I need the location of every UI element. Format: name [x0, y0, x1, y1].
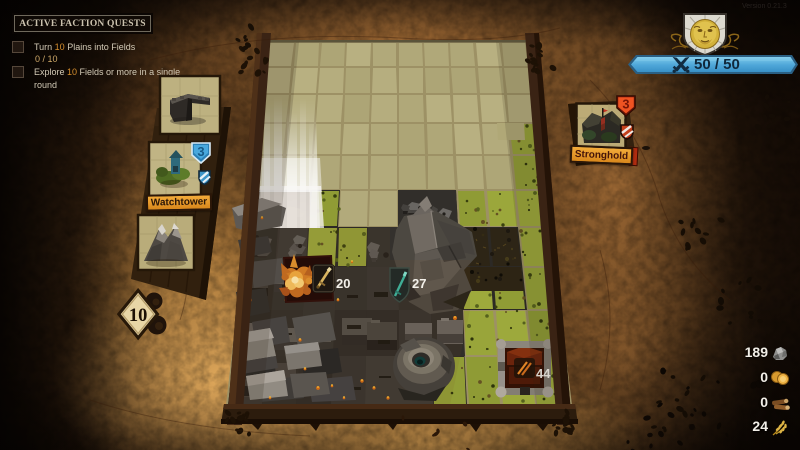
- svg-text:10: 10: [129, 305, 147, 325]
- svg-text:3: 3: [197, 144, 204, 159]
- svg-text:27: 27: [412, 276, 426, 291]
- svg-text:20: 20: [336, 276, 350, 291]
- svg-text:3: 3: [622, 97, 629, 112]
